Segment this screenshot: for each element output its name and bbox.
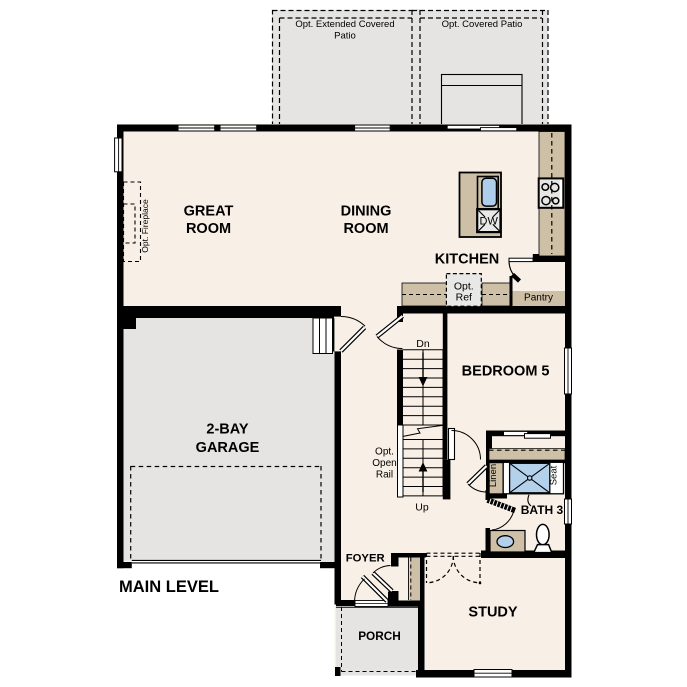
svg-text:FOYER: FOYER — [346, 553, 385, 565]
svg-text:ROOM: ROOM — [343, 221, 388, 237]
svg-text:Seat: Seat — [549, 465, 560, 485]
svg-text:Opt.: Opt. — [375, 447, 394, 458]
svg-text:Opt. Covered Patio: Opt. Covered Patio — [442, 19, 523, 30]
svg-text:DINING: DINING — [341, 203, 392, 219]
svg-text:Pantry: Pantry — [524, 293, 553, 304]
svg-text:GREAT: GREAT — [184, 203, 234, 219]
svg-text:Ref: Ref — [456, 292, 472, 304]
svg-text:BEDROOM 5: BEDROOM 5 — [462, 363, 550, 379]
svg-text:BATH 3: BATH 3 — [521, 503, 564, 517]
svg-text:ROOM: ROOM — [186, 221, 231, 237]
svg-text:Linen: Linen — [488, 464, 499, 487]
svg-text:Opt. Extended Covered: Opt. Extended Covered — [295, 19, 394, 30]
svg-text:Open: Open — [372, 458, 396, 469]
svg-text:DW: DW — [480, 216, 499, 228]
svg-text:Rail: Rail — [376, 470, 393, 481]
svg-text:2-BAY: 2-BAY — [206, 422, 249, 438]
svg-text:Patio: Patio — [334, 31, 356, 42]
svg-text:STUDY: STUDY — [468, 604, 517, 620]
svg-text:MAIN LEVEL: MAIN LEVEL — [119, 578, 219, 596]
svg-text:Opt. Fireplace: Opt. Fireplace — [140, 199, 150, 253]
svg-text:GARAGE: GARAGE — [196, 440, 260, 456]
svg-text:PORCH: PORCH — [358, 629, 401, 643]
svg-text:Up: Up — [415, 502, 429, 514]
svg-text:KITCHEN: KITCHEN — [435, 252, 499, 268]
svg-text:Dn: Dn — [416, 338, 430, 350]
